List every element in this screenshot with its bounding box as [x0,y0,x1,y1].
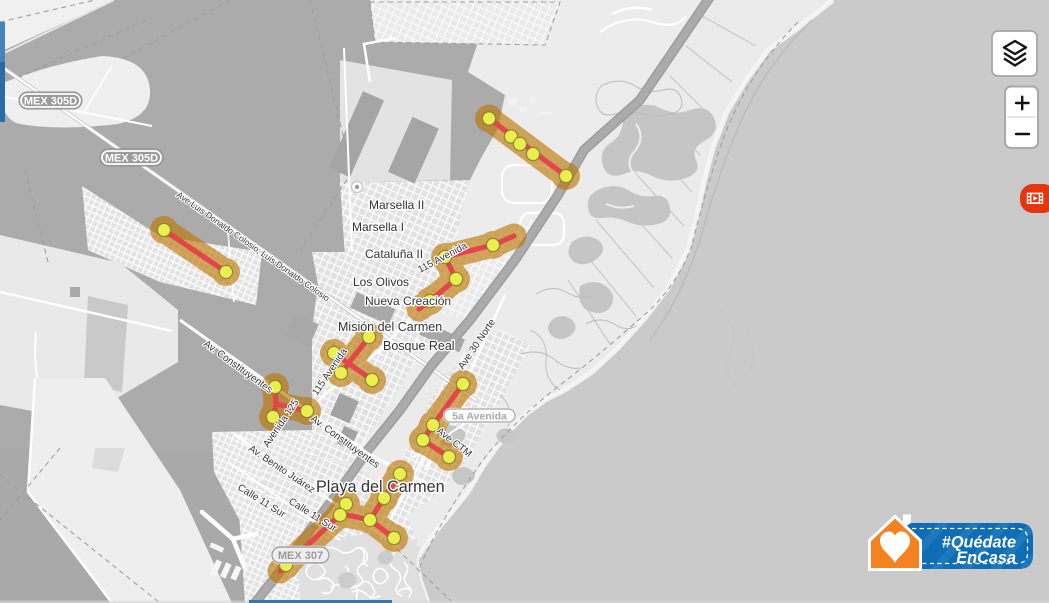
svg-text:Marsella I: Marsella I [352,220,404,234]
svg-text:Playa del Carmen: Playa del Carmen [316,478,445,496]
svg-text:Misión del Carmen: Misión del Carmen [338,320,442,334]
svg-text:MEX 307: MEX 307 [278,550,323,562]
svg-text:5a Avenida: 5a Avenida [452,410,507,422]
svg-text:Marsella II: Marsella II [369,198,424,212]
svg-text:MEX 305D: MEX 305D [24,96,77,108]
svg-text:MEX 305D: MEX 305D [105,153,158,165]
svg-text:Los Olivos: Los Olivos [353,275,409,289]
svg-text:Nueva Creación: Nueva Creación [365,294,451,308]
svg-text:Cataluña II: Cataluña II [365,247,423,261]
svg-text:Bosque Real: Bosque Real [383,339,455,353]
svg-text:EnCasa: EnCasa [956,549,1016,567]
